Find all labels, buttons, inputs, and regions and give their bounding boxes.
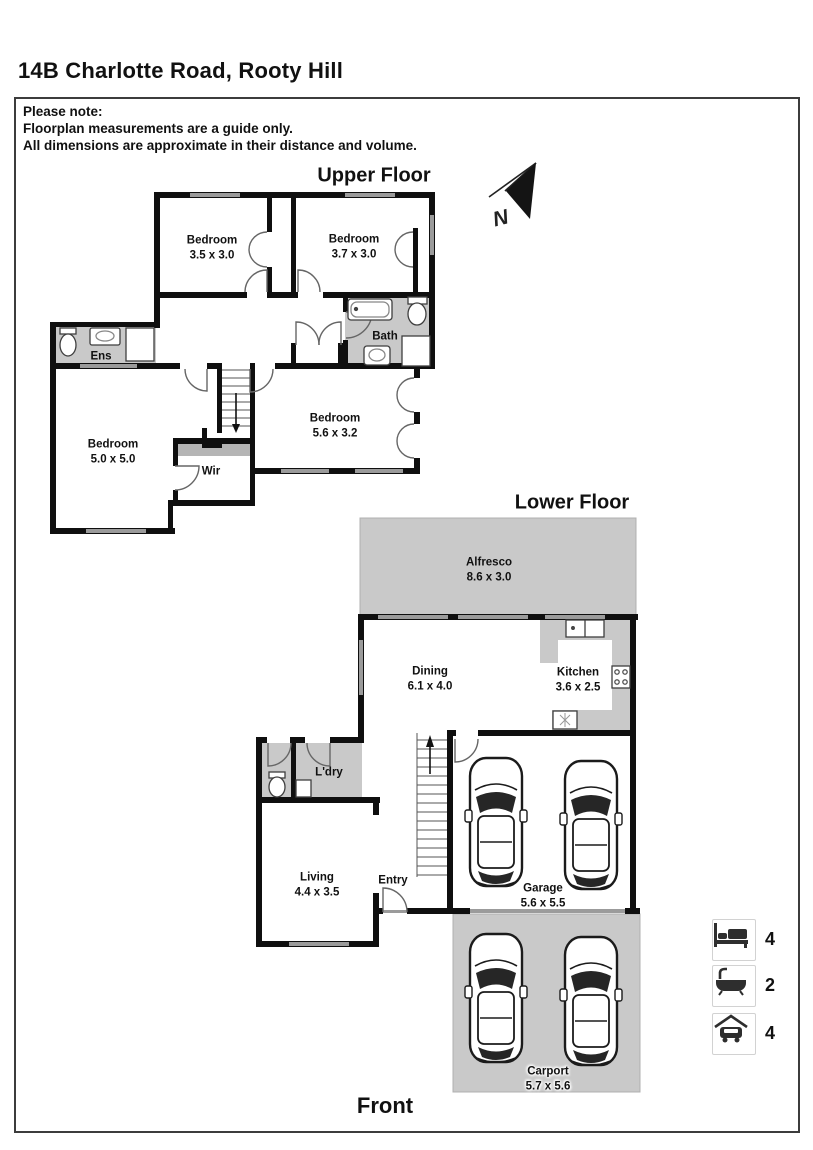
bathroom-count: 2 bbox=[760, 975, 780, 996]
bath-shower-icon bbox=[402, 336, 430, 366]
lower-floor-plan bbox=[256, 518, 640, 1092]
carport-car-icon bbox=[465, 934, 527, 1062]
legend-cars bbox=[712, 1013, 756, 1055]
legend-bathrooms bbox=[712, 965, 756, 1007]
room-label-bath: Bath bbox=[372, 330, 398, 345]
legend-bedrooms bbox=[712, 919, 756, 961]
bed-icon bbox=[713, 920, 749, 950]
room-label-kitchen: Kitchen3.6 x 2.5 bbox=[556, 665, 601, 694]
room-label-bedroom3: Bedroom5.6 x 3.2 bbox=[310, 411, 360, 440]
garage-car-icon bbox=[560, 761, 622, 889]
ens-shower-icon bbox=[126, 328, 154, 361]
carport-car-icon bbox=[560, 937, 622, 1065]
room-label-carport: Carport5.7 x 5.6 bbox=[526, 1064, 571, 1093]
room-label-garage: Garage5.6 x 5.5 bbox=[521, 881, 566, 910]
room-label-alfresco: Alfresco8.6 x 3.0 bbox=[466, 555, 512, 584]
room-label-bedroom1: Bedroom3.5 x 3.0 bbox=[187, 233, 237, 262]
room-label-living: Living4.4 x 3.5 bbox=[295, 870, 340, 899]
room-label-dining: Dining6.1 x 4.0 bbox=[408, 664, 453, 693]
bath-icon bbox=[713, 966, 749, 996]
north-letter: N bbox=[491, 205, 512, 231]
floorplan-svg: N bbox=[0, 0, 813, 1150]
car-icon bbox=[713, 1014, 749, 1044]
room-label-wir: Wir bbox=[202, 465, 220, 480]
bedroom-count: 4 bbox=[760, 929, 780, 950]
upper-stairs bbox=[222, 370, 250, 433]
room-label-laundry: L'dry bbox=[315, 766, 343, 781]
lower-stairs bbox=[417, 733, 447, 877]
car-count: 4 bbox=[760, 1023, 780, 1044]
washer-icon bbox=[296, 780, 311, 797]
room-label-ens: Ens bbox=[90, 350, 111, 365]
room-label-entry: Entry bbox=[378, 874, 407, 889]
stairs-down-arrow-icon bbox=[232, 424, 240, 433]
room-label-bedroom4: Bedroom5.0 x 5.0 bbox=[88, 437, 138, 466]
floorplan-page: 14B Charlotte Road, Rooty Hill Please no… bbox=[0, 0, 813, 1150]
stairs-up-arrow-icon bbox=[426, 735, 434, 747]
garage-car-icon bbox=[465, 758, 527, 886]
stove-icon bbox=[612, 666, 630, 688]
room-label-bedroom2: Bedroom3.7 x 3.0 bbox=[329, 232, 379, 261]
ens-toilet-icon bbox=[60, 328, 76, 334]
north-arrow-icon: N bbox=[489, 163, 536, 231]
